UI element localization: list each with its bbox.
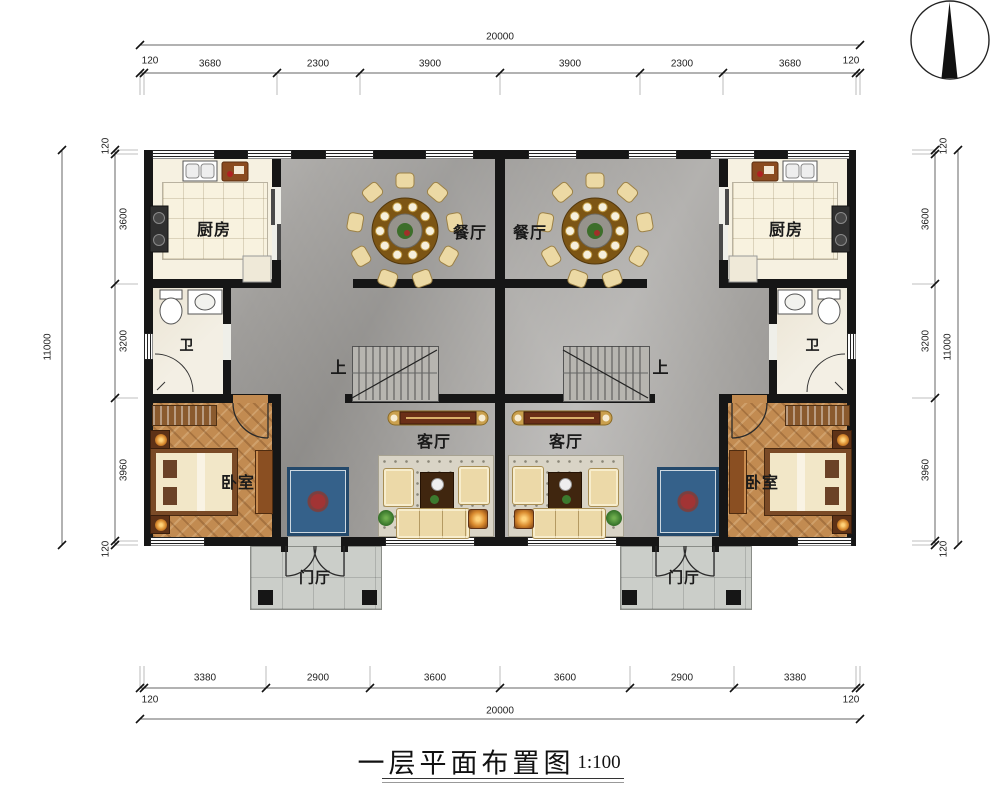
wall-kitchen-left-south xyxy=(144,279,281,288)
dim-right-seg: 3600 xyxy=(921,208,932,230)
window xyxy=(150,537,205,546)
room-label-bath-right: 卫 xyxy=(806,335,821,355)
dim-top-seg: 2300 xyxy=(307,59,329,70)
plant xyxy=(378,510,394,526)
porch-right-door-gap xyxy=(653,537,717,546)
window xyxy=(144,333,153,360)
armchair xyxy=(588,468,619,507)
window xyxy=(797,537,852,546)
room-label-kitchen-right: 厨房 xyxy=(769,216,803,240)
dim-top-seg: 3680 xyxy=(199,59,221,70)
bath-left-door-gap xyxy=(223,324,231,360)
stair-up-label-right: 上 xyxy=(652,354,669,378)
window xyxy=(152,150,215,159)
armchair xyxy=(458,466,490,505)
side-table-right xyxy=(514,509,534,529)
coffee-table-left xyxy=(420,472,454,510)
pillow xyxy=(825,460,839,478)
dim-top-seg: 3900 xyxy=(559,59,581,70)
bedroom-right-door-gap xyxy=(732,395,767,403)
room-label-foyer-right: 门厅 xyxy=(668,567,700,588)
coffee-table-right xyxy=(548,472,582,510)
porch-left-column xyxy=(362,590,377,605)
room-label-foyer-left: 门厅 xyxy=(299,567,331,588)
wall-bedroom-right-west xyxy=(719,394,728,546)
room-label-kitchen-left: 厨房 xyxy=(197,216,231,240)
side-table-left xyxy=(468,509,488,529)
window xyxy=(628,150,677,159)
slider-leaf xyxy=(271,189,275,225)
stairs-right xyxy=(563,346,650,402)
nightstand xyxy=(832,430,852,449)
armchair xyxy=(383,468,414,507)
wall-dining-south xyxy=(353,279,647,288)
dim-bottom-end-right: 120 xyxy=(843,695,860,706)
rug-left xyxy=(287,467,349,536)
dim-right-end-top: 120 xyxy=(939,138,950,155)
dresser-left xyxy=(255,450,273,514)
room-label-bedroom-left: 卧室 xyxy=(221,469,255,493)
dim-bottom-total: 20000 xyxy=(486,706,514,717)
dim-right-seg: 3200 xyxy=(921,330,932,352)
dim-top-seg: 3680 xyxy=(779,59,801,70)
room-label-bath-left: 卫 xyxy=(180,335,195,355)
dim-right-total: 11000 xyxy=(943,333,954,360)
armchair xyxy=(512,466,544,505)
dim-left-total: 11000 xyxy=(43,333,54,360)
window xyxy=(425,150,474,159)
dim-top-end-left: 120 xyxy=(142,56,159,67)
room-label-living-left: 客厅 xyxy=(417,428,451,452)
porch-left-door-gap xyxy=(283,537,347,546)
bedroom-left-door-gap xyxy=(233,395,268,403)
wall-kitchen-right-south xyxy=(719,279,856,288)
door-jamb xyxy=(341,537,348,552)
room-label-dining-left: 餐厅 xyxy=(453,219,487,243)
porch-right-column xyxy=(622,590,637,605)
porch-left-column xyxy=(258,590,273,605)
porch-right-column xyxy=(726,590,741,605)
window xyxy=(528,150,577,159)
drawing-scale: 1:100 xyxy=(577,752,620,774)
north-arrow-icon xyxy=(911,1,989,79)
window xyxy=(847,333,856,360)
dim-bottom-seg: 3600 xyxy=(554,673,576,684)
room-label-living-right: 客厅 xyxy=(549,428,583,452)
pillow xyxy=(825,487,839,505)
dim-top-seg: 3900 xyxy=(419,59,441,70)
sofa-left xyxy=(396,508,470,539)
room-label-dining-right: 餐厅 xyxy=(513,219,547,243)
window xyxy=(325,150,374,159)
room-label-bedroom-right: 卧室 xyxy=(745,469,779,493)
door-jamb xyxy=(281,537,288,552)
dim-bottom-seg: 2900 xyxy=(307,673,329,684)
dim-bottom-seg: 3600 xyxy=(424,673,446,684)
bed-fold xyxy=(797,453,805,511)
dim-left-end-bottom: 120 xyxy=(101,541,112,558)
wardrobe-left xyxy=(152,405,217,426)
plant xyxy=(606,510,622,526)
nightstand xyxy=(150,515,170,534)
door-jamb xyxy=(712,537,719,552)
window xyxy=(247,150,292,159)
dim-top-end-right: 120 xyxy=(843,56,860,67)
dim-left-seg: 3200 xyxy=(119,330,130,352)
dim-left-seg: 3960 xyxy=(119,459,130,481)
wardrobe-right xyxy=(785,405,850,426)
dim-left-end-top: 120 xyxy=(101,138,112,155)
slider-leaf xyxy=(277,224,281,260)
dim-bottom-seg: 3380 xyxy=(784,673,806,684)
slider-leaf xyxy=(719,224,723,260)
dim-top-total: 20000 xyxy=(486,32,514,43)
pillow xyxy=(163,460,177,478)
rug-right xyxy=(657,467,719,536)
stairs-left xyxy=(352,346,439,402)
nightstand xyxy=(832,515,852,534)
wall-bedroom-left-east xyxy=(272,394,281,546)
slider-leaf xyxy=(725,189,729,225)
dim-right-end-bottom: 120 xyxy=(939,541,950,558)
title-underline-2 xyxy=(382,782,624,783)
dim-bottom-seg: 2900 xyxy=(671,673,693,684)
wall-party-center xyxy=(495,150,505,546)
floor-plan-canvas: 20000 120 3680 2300 3900 3900 2300 3680 … xyxy=(0,0,1000,800)
dim-bottom-seg: 3380 xyxy=(194,673,216,684)
window xyxy=(787,150,850,159)
dim-right-seg: 3960 xyxy=(921,459,932,481)
bed-fold xyxy=(197,453,205,511)
title-underline xyxy=(382,778,624,779)
drawing-title: 一层平面布置图 xyxy=(358,742,575,781)
window xyxy=(710,150,755,159)
dim-bottom-end-left: 120 xyxy=(142,695,159,706)
door-jamb xyxy=(652,537,659,552)
bath-right-door-gap xyxy=(769,324,777,360)
dim-top-seg: 2300 xyxy=(671,59,693,70)
dim-left-seg: 3600 xyxy=(119,208,130,230)
stair-up-label-left: 上 xyxy=(330,354,347,378)
nightstand xyxy=(150,430,170,449)
sofa-right xyxy=(532,508,606,539)
pillow xyxy=(163,487,177,505)
